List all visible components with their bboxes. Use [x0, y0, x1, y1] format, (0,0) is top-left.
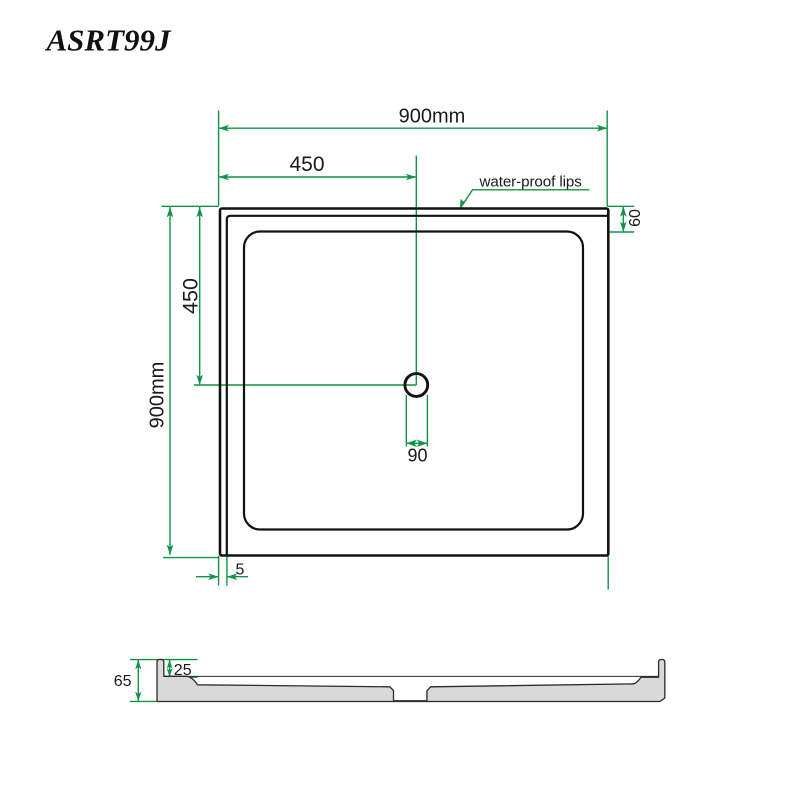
svg-text:5: 5: [236, 562, 245, 579]
svg-text:900mm: 900mm: [399, 106, 466, 128]
svg-text:450: 450: [178, 278, 202, 314]
svg-text:65: 65: [114, 673, 132, 690]
svg-text:ASRT99J: ASRT99J: [45, 23, 173, 58]
svg-text:25: 25: [174, 662, 192, 679]
svg-text:450: 450: [289, 153, 324, 176]
svg-text:60: 60: [627, 209, 644, 227]
svg-text:water-proof lips: water-proof lips: [479, 174, 583, 191]
svg-text:90: 90: [407, 446, 427, 466]
svg-text:900mm: 900mm: [147, 362, 169, 429]
